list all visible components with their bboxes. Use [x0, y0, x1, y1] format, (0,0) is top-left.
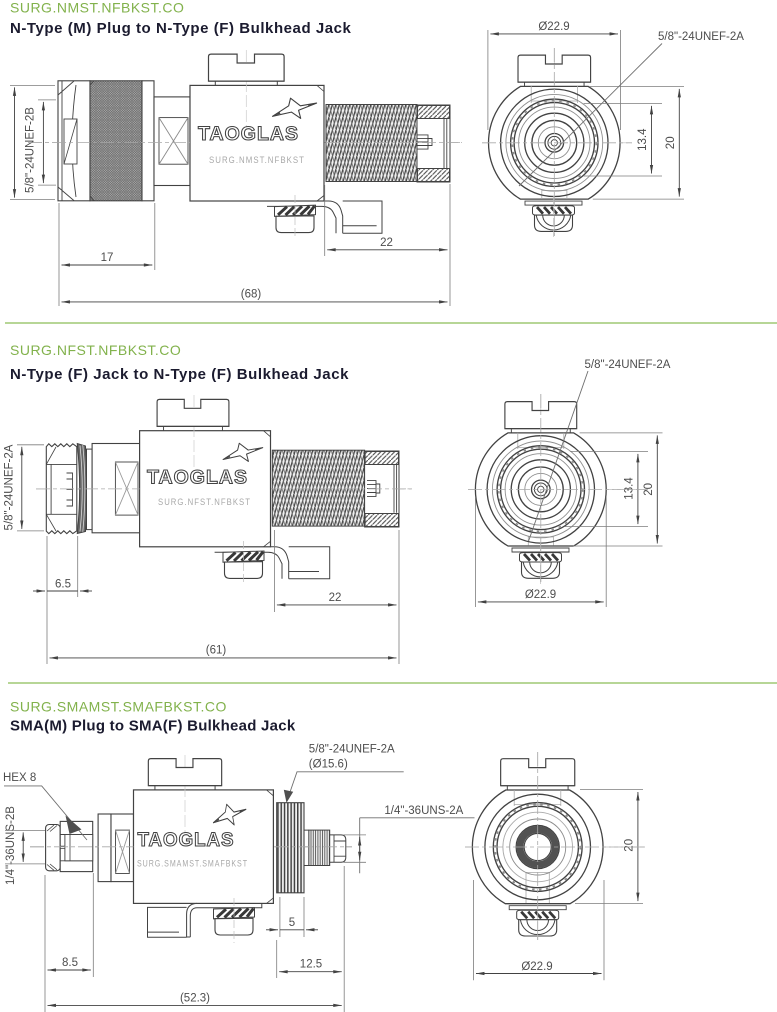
svg-text:17: 17	[101, 252, 114, 264]
svg-text:1/4"-36UNS-2A: 1/4"-36UNS-2A	[384, 805, 463, 817]
svg-text:SURG.NFST.NFBKST.CO: SURG.NFST.NFBKST.CO	[10, 342, 181, 358]
svg-text:20: 20	[665, 136, 677, 149]
svg-text:SURG.NMST.NFBKST: SURG.NMST.NFBKST	[209, 155, 305, 165]
svg-text:5: 5	[289, 917, 295, 929]
svg-text:5/8"-24UNEF-2B: 5/8"-24UNEF-2B	[25, 107, 37, 193]
svg-text:5/8"-24UNEF-2A: 5/8"-24UNEF-2A	[585, 359, 671, 371]
svg-text:SURG.NMST.NFBKST.CO: SURG.NMST.NFBKST.CO	[10, 0, 184, 16]
svg-text:5/8"-24UNEF-2A: 5/8"-24UNEF-2A	[4, 444, 16, 530]
svg-text:TAOGLAS: TAOGLAS	[138, 829, 235, 851]
svg-text:(Ø15.6): (Ø15.6)	[309, 759, 348, 771]
svg-text:8.5: 8.5	[62, 957, 78, 969]
svg-text:(52.3): (52.3)	[180, 992, 210, 1004]
svg-text:(68): (68)	[241, 289, 262, 301]
svg-text:HEX 8: HEX 8	[3, 772, 36, 784]
svg-text:SMA(M) Plug to SMA(F) Bulkhead: SMA(M) Plug to SMA(F) Bulkhead Jack	[10, 718, 296, 735]
svg-text:N-Type (M) Plug to N-Type (F): N-Type (M) Plug to N-Type (F) Bulkhead J…	[10, 20, 352, 37]
svg-text:1/4"-36UNS-2B: 1/4"-36UNS-2B	[5, 806, 17, 885]
svg-text:13.4: 13.4	[637, 128, 649, 151]
svg-text:5/8"-24UNEF-2A: 5/8"-24UNEF-2A	[658, 31, 744, 43]
svg-text:12.5: 12.5	[300, 959, 322, 971]
svg-text:Ø22.9: Ø22.9	[521, 961, 552, 973]
svg-text:(61): (61)	[206, 645, 227, 657]
svg-text:TAOGLAS: TAOGLAS	[147, 467, 248, 489]
svg-text:5/8"-24UNEF-2A: 5/8"-24UNEF-2A	[309, 744, 395, 756]
svg-text:SURG.SMAMST.SMAFBKST.CO: SURG.SMAMST.SMAFBKST.CO	[10, 699, 227, 715]
svg-text:N-Type (F) Jack to N-Type (F): N-Type (F) Jack to N-Type (F) Bulkhead J…	[10, 366, 349, 383]
svg-text:Ø22.9: Ø22.9	[525, 589, 556, 601]
svg-text:Ø22.9: Ø22.9	[538, 21, 569, 33]
svg-text:6.5: 6.5	[55, 579, 71, 591]
svg-text:13.4: 13.4	[624, 477, 636, 500]
svg-text:22: 22	[329, 592, 342, 604]
svg-text:TAOGLAS: TAOGLAS	[198, 123, 299, 145]
svg-text:20: 20	[624, 839, 636, 852]
svg-text:22: 22	[380, 237, 393, 249]
svg-text:SURG.NFST.NFBKST: SURG.NFST.NFBKST	[158, 497, 251, 507]
svg-text:SURG.SMAMST.SMAFBKST: SURG.SMAMST.SMAFBKST	[137, 859, 248, 869]
